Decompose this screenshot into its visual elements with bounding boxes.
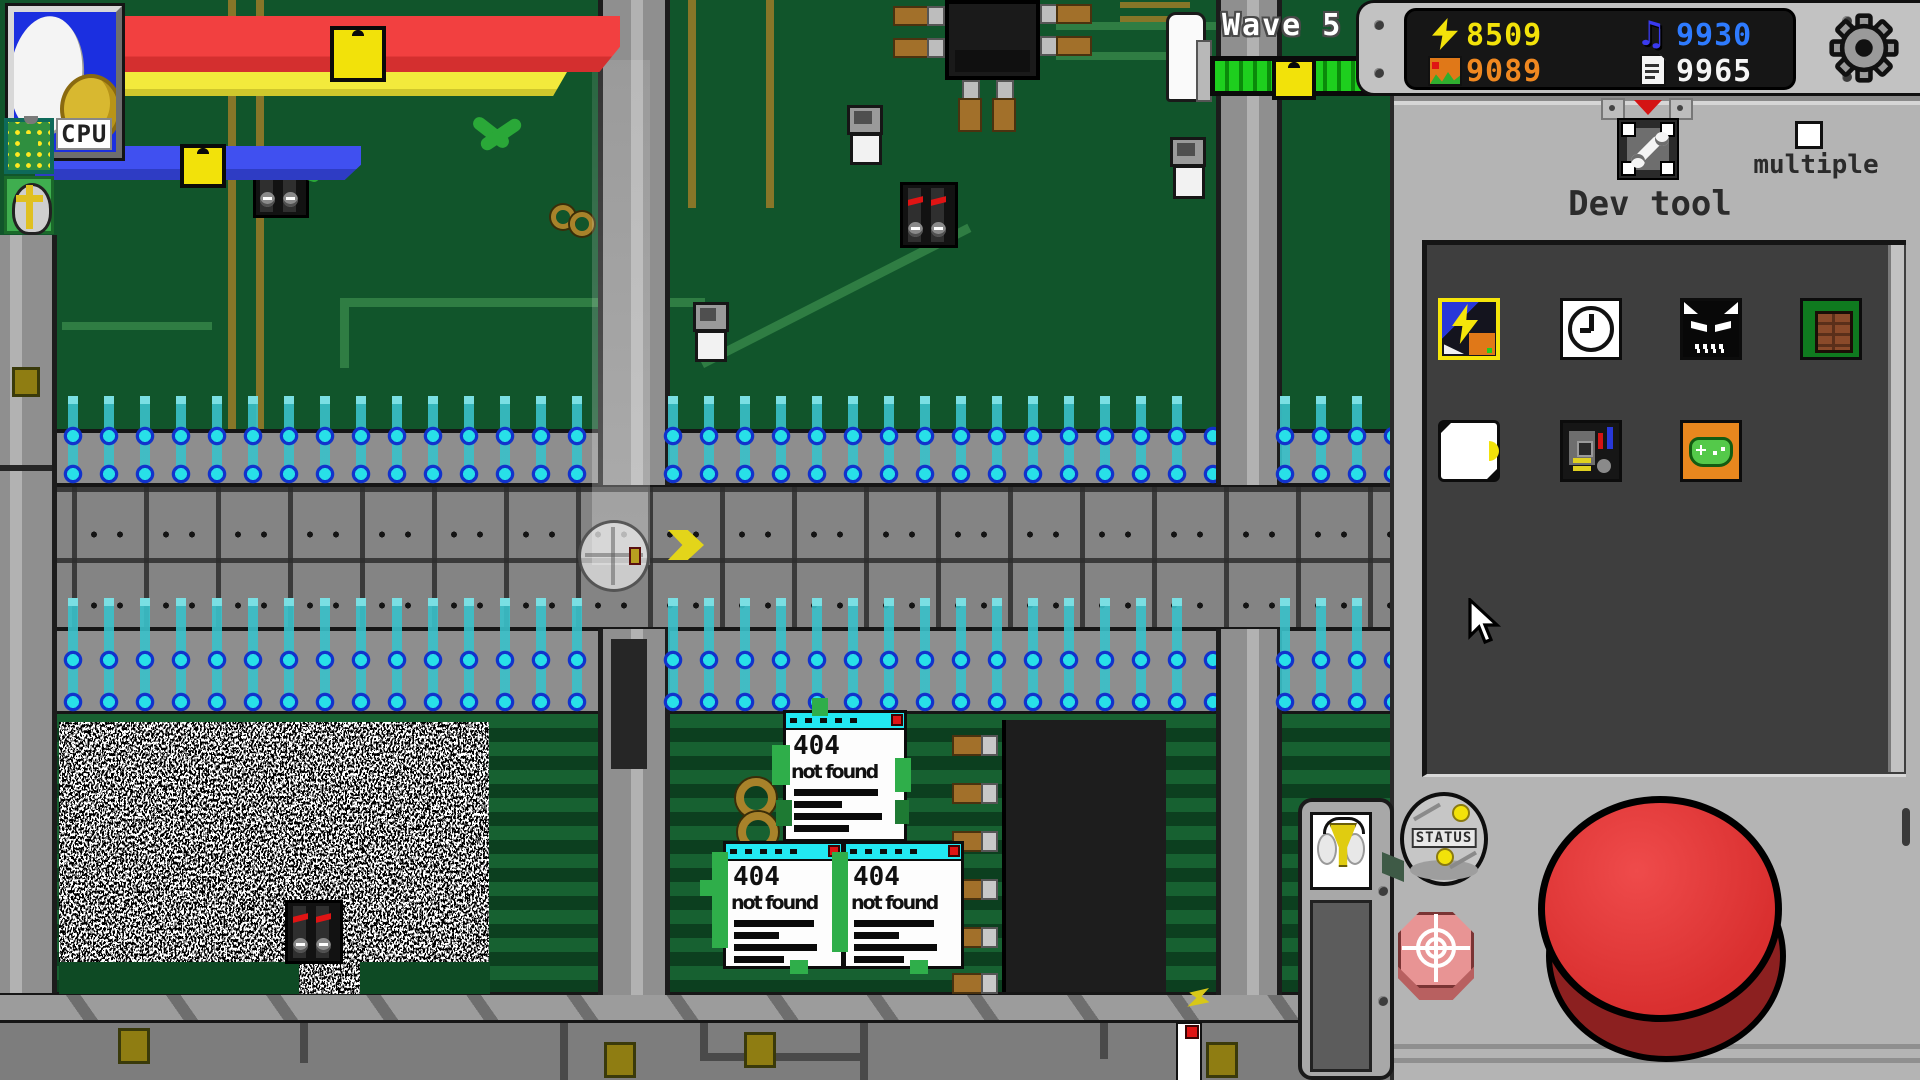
brick-wall-tool[interactable] bbox=[1800, 298, 1862, 360]
pcb-trace bbox=[1120, 2, 1190, 8]
rivet bbox=[1374, 20, 1384, 30]
gamepad-tool[interactable] bbox=[1680, 420, 1742, 482]
floor-knob bbox=[744, 1032, 776, 1068]
lock-icon bbox=[180, 144, 226, 188]
energy-orb-row bbox=[660, 690, 1216, 714]
vine bbox=[772, 745, 790, 785]
vine bbox=[700, 880, 714, 896]
floor-line bbox=[1100, 1023, 1108, 1059]
error-popup: 404 not found bbox=[723, 841, 844, 969]
energy-orb-row bbox=[1272, 462, 1392, 486]
status-led bbox=[1436, 848, 1454, 866]
target-button[interactable] bbox=[1398, 912, 1474, 1000]
floor-line bbox=[700, 1053, 868, 1061]
key-switch[interactable] bbox=[1310, 812, 1372, 890]
chip-pin bbox=[952, 735, 998, 752]
floor-line bbox=[300, 1023, 308, 1063]
left-pillar bbox=[0, 235, 57, 993]
multiple-checkbox[interactable] bbox=[1795, 121, 1823, 149]
ic-chip bbox=[945, 0, 1040, 80]
demon-tool[interactable] bbox=[1680, 298, 1742, 360]
multiple-label: multiple bbox=[1736, 150, 1896, 180]
popup-message: not found bbox=[731, 892, 817, 914]
error-popup: 404 not found bbox=[843, 841, 964, 969]
scrollbar[interactable] bbox=[1888, 245, 1904, 772]
wave-label: Wave 5 bbox=[1222, 8, 1342, 43]
error-popup: 404 not found bbox=[783, 710, 907, 842]
module-slab bbox=[1310, 900, 1372, 1072]
music-counter: 9930 bbox=[1676, 18, 1752, 53]
document-icon bbox=[1640, 54, 1666, 86]
cpu-label: CPU bbox=[56, 118, 112, 150]
turret bbox=[900, 182, 958, 248]
vine bbox=[712, 852, 728, 948]
floor-line bbox=[560, 1023, 568, 1080]
popup-code: 404 bbox=[793, 733, 840, 759]
vine bbox=[790, 960, 808, 974]
vine bbox=[812, 698, 828, 716]
energy-orb-row bbox=[60, 690, 598, 714]
popup-code: 404 bbox=[853, 864, 900, 890]
robot-enemy bbox=[1168, 137, 1206, 197]
vine bbox=[910, 960, 928, 974]
energy-orb-row bbox=[1272, 648, 1392, 672]
floor-knob bbox=[604, 1042, 636, 1078]
pillar bbox=[1216, 629, 1282, 995]
energy-orb-row bbox=[1272, 690, 1392, 714]
picture-icon bbox=[1428, 56, 1462, 86]
lock-icon bbox=[1272, 58, 1316, 100]
file-counter: 9965 bbox=[1676, 54, 1752, 89]
drone-bubble bbox=[578, 520, 650, 592]
pillar bbox=[598, 629, 670, 995]
floor-line bbox=[860, 1023, 868, 1080]
image-counter: 9089 bbox=[1466, 54, 1542, 89]
energy-orb-row bbox=[660, 462, 1216, 486]
big-red-button[interactable] bbox=[1538, 796, 1782, 1022]
energy-counter: 8509 bbox=[1466, 18, 1542, 53]
chip-pad bbox=[958, 98, 982, 132]
static-noise-area bbox=[59, 722, 489, 994]
energy-orb-row bbox=[660, 648, 1216, 672]
chip-pin bbox=[952, 783, 998, 800]
energy-orb-row bbox=[1272, 424, 1392, 448]
white-orb-tool[interactable] bbox=[1438, 420, 1500, 482]
clock-tool[interactable] bbox=[1560, 298, 1622, 360]
settings-gear-icon[interactable] bbox=[1826, 10, 1902, 86]
turret bbox=[285, 900, 343, 964]
smoke-trail bbox=[592, 60, 650, 565]
lock-icon bbox=[330, 26, 386, 82]
pcb-trace bbox=[62, 322, 212, 330]
status-label: STATUS bbox=[1412, 828, 1477, 848]
circuit-scrap-tool[interactable] bbox=[1560, 420, 1622, 482]
cpu-chip-icon bbox=[4, 118, 54, 174]
pcb-trace bbox=[340, 298, 349, 368]
energy-orb-row bbox=[60, 648, 598, 672]
popup-code: 404 bbox=[733, 864, 780, 890]
vine bbox=[832, 852, 848, 952]
vine bbox=[895, 758, 911, 792]
pcb-patch bbox=[59, 962, 299, 994]
close-icon[interactable] bbox=[948, 845, 960, 857]
mini-popup bbox=[1176, 1022, 1202, 1080]
chip-pin bbox=[1040, 4, 1092, 20]
chip-pin bbox=[952, 973, 998, 990]
game-screen: 404 not found 404 not found 404 not foun… bbox=[0, 0, 1920, 1080]
devtool-title: Dev tool bbox=[1520, 184, 1780, 224]
popup-message: not found bbox=[851, 892, 937, 914]
vine bbox=[895, 800, 909, 824]
cheat-lightning-tool[interactable] bbox=[1438, 298, 1500, 360]
mouse-cursor bbox=[1466, 598, 1502, 650]
pcb-trace bbox=[688, 0, 696, 208]
tab-bracket bbox=[1601, 98, 1625, 120]
popup-message: not found bbox=[791, 761, 877, 783]
music-note-icon: ♫ bbox=[1636, 14, 1666, 54]
rivet bbox=[1374, 68, 1384, 78]
chip-pin bbox=[1040, 36, 1092, 52]
chip-pin bbox=[893, 6, 945, 22]
energy-orb-row bbox=[60, 424, 598, 448]
close-icon[interactable] bbox=[891, 714, 903, 726]
devtool-tab-wrench-icon[interactable] bbox=[1617, 118, 1679, 180]
pcb-patch bbox=[360, 962, 490, 994]
vine bbox=[776, 800, 792, 826]
chip-pad bbox=[992, 98, 1016, 132]
status-led bbox=[1452, 804, 1470, 822]
knight-helmet-icon bbox=[4, 176, 54, 234]
rivet bbox=[1378, 886, 1388, 896]
energy-orb-row bbox=[660, 424, 1216, 448]
energy-orb-row bbox=[60, 462, 598, 486]
status-indicator: STATUS bbox=[1400, 792, 1488, 886]
rivet bbox=[1378, 996, 1388, 1006]
solder-ring bbox=[570, 212, 594, 236]
ic-chip-lower bbox=[1002, 720, 1166, 992]
robot-enemy bbox=[845, 105, 883, 163]
pcb-trace bbox=[766, 0, 774, 208]
robot-enemy bbox=[691, 302, 727, 360]
tab-bracket bbox=[1669, 98, 1693, 120]
floor-knob bbox=[1206, 1042, 1238, 1078]
chip-pin bbox=[893, 38, 945, 54]
floor-knob bbox=[118, 1028, 150, 1064]
floor-line bbox=[700, 1023, 708, 1053]
